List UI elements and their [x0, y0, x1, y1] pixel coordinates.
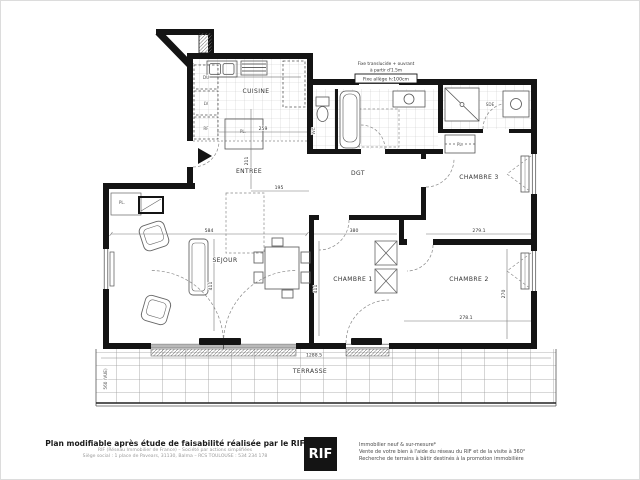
dim-terrasse-width: 1288.5 [306, 353, 322, 359]
roller-shutter-tag [199, 338, 241, 345]
appliance-label: LV [204, 101, 209, 106]
room-label-entree: ENTREE [236, 168, 262, 175]
appliance-label: DU [203, 75, 209, 80]
washbasin [511, 99, 522, 110]
footer-service-line1: Immobilier neuf & sur-mesure* [359, 442, 624, 449]
room-label-sejour: SEJOUR [212, 257, 237, 264]
footer-address-line: Siège social : 1 place de Pavears, 31130… [39, 454, 311, 460]
room-label-chambre3: CHAMBRE 3 [459, 174, 498, 181]
rif-logo-text: RIF [309, 447, 333, 462]
closet-label-entree: PL. [240, 129, 246, 134]
room-label-chambre1: CHAMBRE 1 [333, 276, 372, 283]
washbasin [404, 94, 414, 104]
dim-sejour-width: 584 [205, 228, 214, 234]
footer-title: Plan modifiable après étude de faisabili… [39, 439, 311, 448]
dim-cuisine-width: 259 [259, 126, 268, 132]
dim-sejour-height: 411 [208, 282, 214, 291]
appliance-label: RF [203, 126, 209, 131]
dim-entree-height: 211 [244, 157, 250, 166]
footer-service-line3: Recherche de terrains à bâtir destinés à… [359, 456, 624, 463]
walls [103, 29, 537, 349]
armchair [140, 294, 172, 326]
footer-right-block: Immobilier neuf & sur-mesure* Vente de v… [359, 442, 624, 463]
roller-shutter-tag [351, 338, 382, 345]
annotation-line1: Fixe translucide + ouvrant [358, 61, 415, 67]
dim-chambre2-width-bottom: 278.1 [459, 315, 472, 321]
dim-entree-width: 195 [275, 185, 284, 191]
dim-terrasse-side: 560 (VUE) [103, 368, 108, 390]
dining-table [265, 247, 299, 289]
dim-chambre2-width-top: 279.1 [472, 228, 485, 234]
sejour-furniture [111, 193, 310, 326]
terrace: 1288.5 TERRASSE 560 (VUE) [96, 349, 556, 406]
annotation-tag: Fixe allège h:100cm [363, 76, 410, 83]
room-label-dgt: DGT [351, 170, 365, 177]
annotation-line2: à partir d'1.5m [370, 67, 402, 74]
floor-plan-page: 1288.5 TERRASSE 560 (VUE) [0, 0, 640, 480]
wc-toilet [317, 107, 328, 122]
dim-chambre1-height: 411 [313, 285, 319, 294]
chambre1-wardrobes [375, 241, 397, 293]
floor-plan-svg: 1288.5 TERRASSE 560 (VUE) [1, 1, 640, 433]
footer-left-block: Plan modifiable après étude de faisabili… [39, 439, 311, 460]
closet-label-sejour: PL. [119, 200, 125, 205]
room-label-cuisine: CUISINE [242, 88, 269, 95]
dim-chambre1-width: 380 [350, 228, 359, 234]
wc-tank [316, 97, 329, 106]
rif-logo: RIF [304, 437, 337, 471]
closet-label-chambre3: PL. [457, 142, 463, 147]
armchair [138, 220, 171, 253]
footer: Plan modifiable après étude de faisabili… [1, 433, 640, 480]
footer-service-line2: Vente de votre bien à l'aide du réseau d… [359, 449, 624, 456]
room-label-chambre2: CHAMBRE 2 [449, 276, 488, 283]
window-annotation: Fixe translucide + ouvrant à partir d'1.… [355, 61, 417, 83]
dim-chambre2-height: 270 [501, 290, 507, 299]
sejour-closet [111, 193, 141, 215]
room-label-wc: WC [311, 127, 316, 134]
room-label-sde: SDE [486, 102, 495, 107]
room-label-terrasse: TERRASSE [292, 368, 327, 375]
entry-arrow-icon [198, 148, 212, 164]
